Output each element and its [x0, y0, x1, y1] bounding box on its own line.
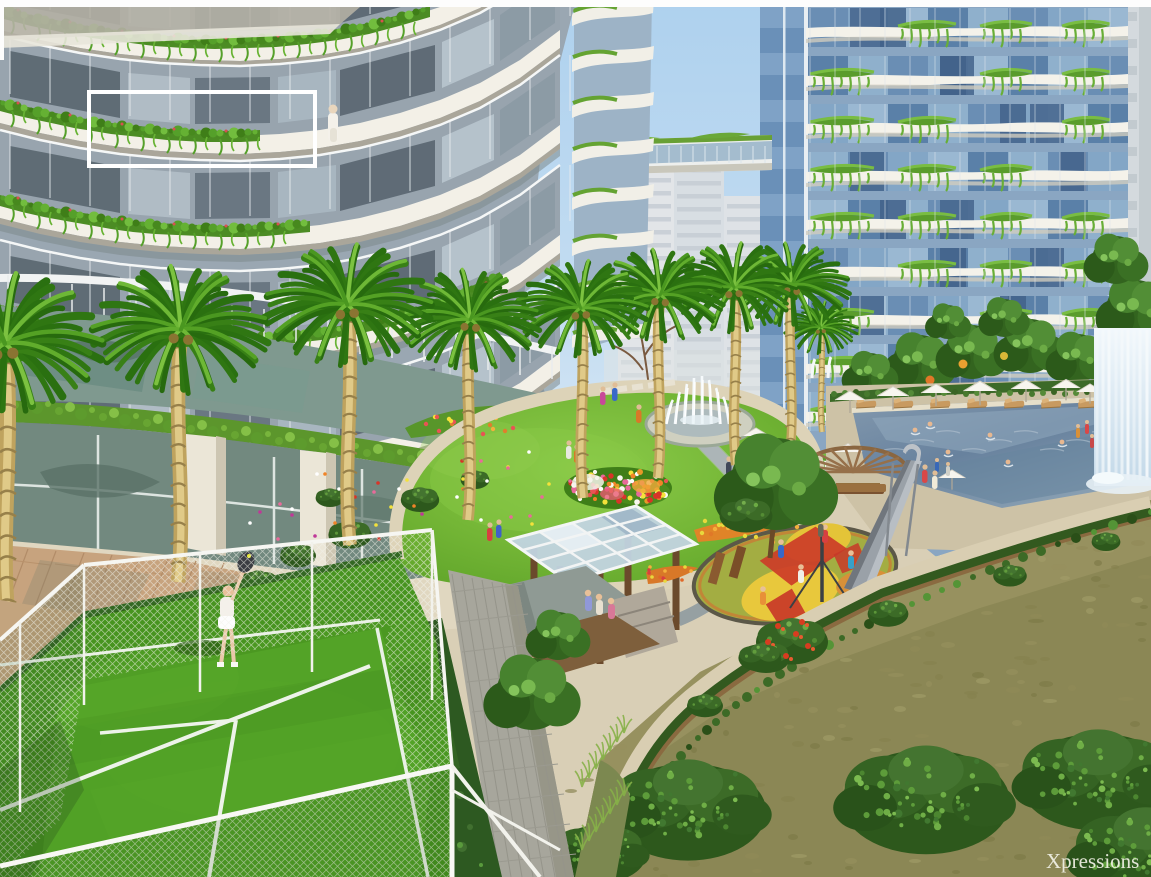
svg-text:Xpressions: Xpressions: [1046, 849, 1139, 873]
